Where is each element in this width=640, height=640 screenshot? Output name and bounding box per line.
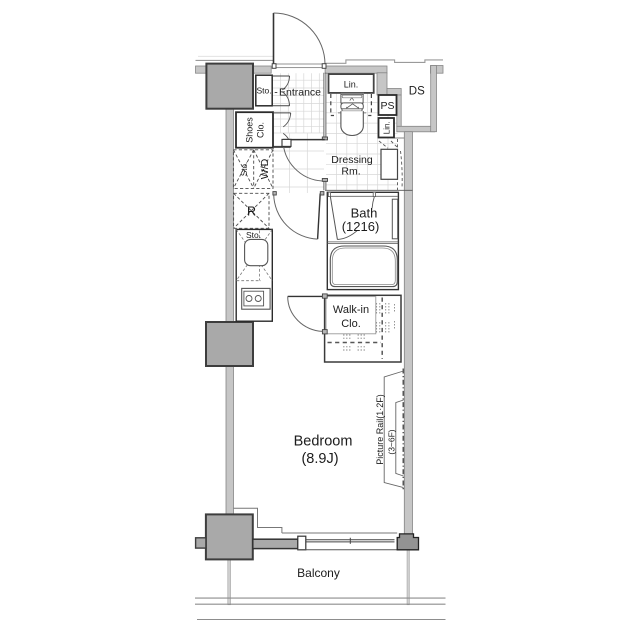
- svg-text:Rm.: Rm.: [341, 166, 360, 178]
- svg-text:Dressing: Dressing: [331, 154, 373, 166]
- svg-text:-: -: [274, 87, 278, 99]
- svg-text:(1216): (1216): [342, 219, 380, 234]
- svg-text:Bedroom: Bedroom: [294, 434, 353, 450]
- svg-text:Picture Rail(1·2F): Picture Rail(1·2F): [375, 394, 385, 465]
- svg-text:Sto.: Sto.: [246, 230, 261, 240]
- svg-text:(3~6F): (3~6F): [387, 429, 397, 454]
- svg-text:Clo.: Clo.: [341, 318, 361, 330]
- svg-text:Lin.: Lin.: [383, 121, 392, 134]
- svg-text:Balcony: Balcony: [297, 566, 340, 580]
- svg-text:Lin.: Lin.: [344, 79, 359, 89]
- svg-text:Clo.: Clo.: [256, 122, 266, 138]
- svg-text:W/D: W/D: [259, 158, 271, 179]
- svg-text:DS: DS: [409, 86, 425, 98]
- svg-text:Shoes: Shoes: [245, 117, 255, 143]
- svg-text:Sto.: Sto.: [240, 162, 249, 176]
- svg-text:PS: PS: [380, 100, 394, 112]
- svg-text:Walk-in: Walk-in: [333, 304, 369, 316]
- svg-text:Entrance: Entrance: [279, 87, 321, 99]
- svg-text:Sto.: Sto.: [256, 86, 271, 96]
- svg-text:R: R: [247, 205, 256, 219]
- svg-text:(8.9J): (8.9J): [301, 451, 338, 467]
